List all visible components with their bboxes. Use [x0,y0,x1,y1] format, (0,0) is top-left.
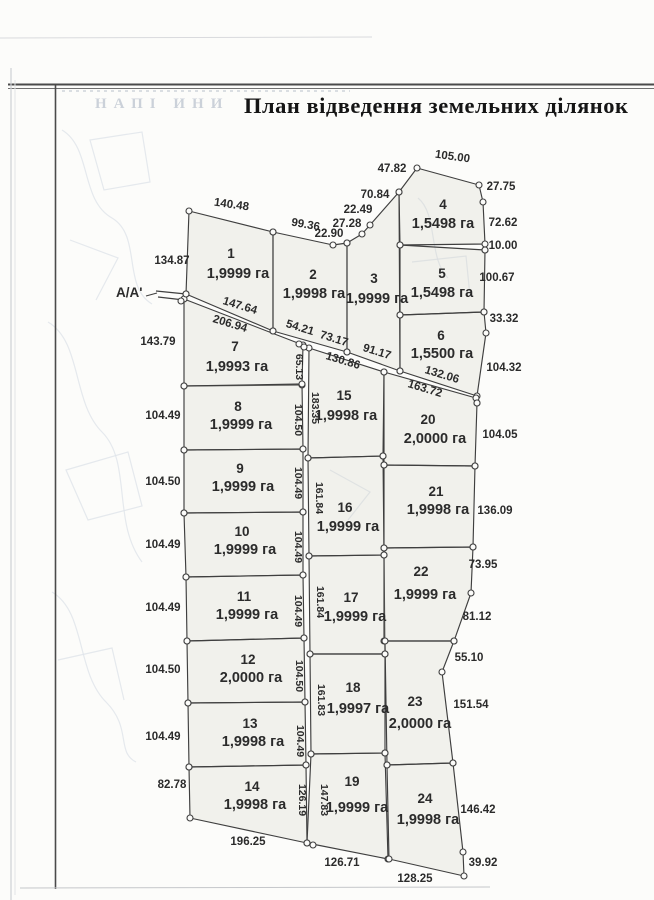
measurement-label: 104.49 [292,531,304,563]
survey-point-icon [181,383,187,389]
measurement-label: 22.49 [344,204,373,216]
parcel-number-label: 5 [438,266,446,281]
parcel-number-label: 22 [413,564,428,579]
measurement-label: 104.49 [145,410,180,422]
measurement-label: 104.50 [293,660,305,692]
parcel-area-label: 1,9998 га [407,502,470,518]
survey-point-icon [380,453,386,459]
bleedthrough-text: НАПІ ИНИ [95,96,229,113]
survey-point-icon [381,462,387,468]
bleedthrough-map-texture [90,132,150,190]
survey-point-icon [181,447,187,453]
survey-point-icon [307,651,313,657]
measurement-label: 104.49 [145,539,180,551]
survey-point-icon [470,544,476,550]
survey-point-icon [178,298,184,304]
survey-point-icon [301,635,307,641]
frame-line [0,37,372,38]
measurement-label: 161.84 [314,586,326,618]
survey-point-icon [397,368,403,374]
survey-point-icon [397,242,403,248]
survey-point-icon [476,182,482,188]
parcel-area-label: 1,9999 га [326,800,389,816]
measurement-label: 82.78 [158,779,187,791]
survey-point-icon [181,510,187,516]
survey-point-icon [183,574,189,580]
parcel-number-label: 16 [337,500,353,515]
survey-point-icon [305,455,311,461]
parcel-number-label: 18 [345,680,361,695]
survey-point-icon [303,762,309,768]
parcel-area-label: 2,0000 га [404,431,467,447]
parcel-area-label: 1,9998 га [224,797,287,813]
survey-point-icon [187,815,193,821]
bleedthrough-map-texture [52,592,136,762]
parcel-number-label: 23 [407,694,423,709]
measurement-label: 105.00 [434,149,471,166]
parcel-area-label: 1,9999 га [216,607,279,623]
measurement-label: 104.49 [292,467,304,499]
measurement-label: 72.62 [489,217,518,229]
measurement-label: 136.09 [477,505,512,517]
survey-point-icon [310,842,316,848]
survey-point-icon [482,241,488,247]
survey-point-icon [344,240,350,246]
measurement-label: 100.67 [479,272,514,284]
survey-point-icon [481,309,487,315]
survey-point-icon [382,750,388,756]
bleedthrough-map-texture [58,648,124,700]
parcel-area-label: 2,0000 га [220,670,283,686]
parcel-area-label: 1,9999 га [207,266,270,282]
survey-point-icon [460,849,466,855]
parcel-area-label: 1,5498 га [411,285,474,301]
measurement-label: 81.12 [463,611,492,623]
measurement-label: 104.50 [145,476,180,488]
measurement-label: 128.25 [397,873,433,885]
parcel-area-label: 2,0000 га [389,716,452,732]
survey-point-icon [300,572,306,578]
survey-point-icon [472,463,478,469]
survey-point-icon [451,638,457,644]
bleedthrough-map-texture [48,322,142,562]
survey-point-icon [270,328,276,334]
survey-point-icon [483,330,489,336]
parcel-area-label: 1,9999 га [212,479,275,495]
survey-point-icon [384,762,390,768]
survey-point-icon [382,638,388,644]
survey-point-icon [308,751,314,757]
survey-point-icon [359,231,365,237]
parcel-area-label: 1,9998 га [283,286,346,302]
parcel-area-label: 1,9998 га [315,408,378,424]
parcel-number-label: 11 [237,589,252,604]
survey-point-icon [468,590,474,596]
survey-point-icon [439,669,445,675]
measurement-label: 10.00 [489,240,518,252]
survey-point-icon [302,699,308,705]
survey-point-icon [304,840,310,846]
survey-point-icon [382,651,388,657]
parcel-area-label: 1,9998 га [222,734,285,750]
survey-point-icon [450,760,456,766]
survey-point-icon [306,553,312,559]
frame-line [20,887,490,888]
parcel-number-label: 24 [417,791,433,806]
parcel-number-label: 3 [370,271,378,286]
parcel-area-label: 1,9999 га [324,609,387,625]
parcel-number-label: 21 [428,484,444,499]
scanned-plan-page: 11,9999 га21,9998 га31,9999 га41,5498 га… [0,0,654,900]
parcel-area-label: 1,5500 га [411,346,474,362]
survey-point-icon [367,222,373,228]
measurement-label: 104.49 [292,595,304,627]
parcel-number-label: 7 [231,339,239,354]
measurement-label: 27.75 [487,181,516,193]
bleedthrough-map-texture [66,452,142,520]
measurement-label: 104.05 [482,429,518,441]
measurement-label: 104.50 [145,664,180,676]
survey-point-icon [186,764,192,770]
bleedthrough-map-texture [70,240,118,300]
parcel-number-label: 10 [234,524,249,539]
measurement-label: 33.32 [490,313,519,325]
measurement-label: 73.95 [469,559,498,571]
survey-point-icon [300,446,306,452]
measurement-label: 65.13 [293,354,305,380]
parcel-number-label: 12 [240,652,255,667]
measurement-label: 104.49 [145,731,180,743]
measurement-label: 70.84 [361,189,390,201]
survey-point-icon [186,208,192,214]
survey-point-icon [381,369,387,375]
parcel-area-label: 1,9997 га [327,701,390,717]
measurement-label: 104.32 [486,362,521,374]
measurement-label: 183.35 [309,392,321,424]
survey-point-icon [414,165,420,171]
parcel-number-label: 2 [309,267,317,282]
measurement-label: 47.82 [378,163,407,175]
parcel-number-label: 20 [420,412,435,427]
parcel-number-label: 9 [236,461,244,476]
measurement-label: 55.10 [455,652,484,664]
survey-point-icon [381,545,387,551]
page-title: План відведення земельних ділянок [244,93,628,119]
survey-point-icon [344,349,350,355]
survey-point-icon [185,700,191,706]
survey-point-icon [184,638,190,644]
measurement-label: 27.28 [333,218,362,230]
survey-point-icon [183,291,189,297]
survey-point-icon [270,229,276,235]
parcel-number-label: 1 [227,246,235,261]
parcel-area-label: 1,9999 га [317,519,380,535]
measurement-label: 104.50 [292,404,304,436]
measurement-label: 161.83 [315,684,327,716]
parcel-area-label: 1,9999 га [210,417,273,433]
parcel-area-label: 1,9993 га [206,359,269,375]
parcel-number-label: 8 [234,399,242,414]
survey-point-icon [299,381,305,387]
parcel-number-label: 17 [343,590,358,605]
survey-point-icon [381,552,387,558]
survey-point-icon [301,344,307,350]
parcel-number-label: 14 [244,779,260,794]
land-allotment-plan-drawing: 11,9999 га21,9998 га31,9999 га41,5498 га… [0,0,654,900]
parcel-area-label: 1,9999 га [214,542,277,558]
survey-point-icon [397,312,403,318]
measurement-label: 39.92 [469,857,498,869]
measurement-label: 147.83 [318,784,330,816]
measurement-label: 140.48 [213,197,250,214]
survey-point-icon [396,189,402,195]
survey-point-icon [474,400,480,406]
measurement-label: 134.87 [154,255,189,267]
survey-point-icon [300,509,306,515]
measurement-label: 126.71 [324,857,360,869]
parcel-number-label: 15 [336,388,352,403]
measurement-label: 104.49 [294,725,306,757]
parcel-area-label: 1,9999 га [394,587,457,603]
measurement-label: 196.25 [230,836,266,848]
parcel-area-label: 1,9999 га [346,291,409,307]
measurement-label: 146.42 [460,804,495,816]
parcel-number-label: 13 [242,716,258,731]
survey-point-icon [461,873,467,879]
measurement-label: 143.79 [140,336,175,348]
parcel-area-label: 1,9998 га [397,812,460,828]
boundary-line [146,293,157,296]
boundary-line [156,291,186,294]
survey-point-icon [480,199,486,205]
survey-point-icon [482,247,488,253]
parcel-number-label: 19 [344,774,359,789]
survey-point-icon [386,856,392,862]
measurement-label: 161.84 [313,482,325,514]
measurement-label: 126.19 [296,784,308,816]
survey-point-icon [330,242,336,248]
parcel-number-label: 6 [437,328,445,343]
section-line-label: А/А' [116,285,142,300]
measurement-label: 104.49 [145,602,180,614]
parcel-area-label: 1,5498 га [412,216,475,232]
parcel-number-label: 4 [439,197,447,212]
measurement-label: 151.54 [453,699,489,711]
